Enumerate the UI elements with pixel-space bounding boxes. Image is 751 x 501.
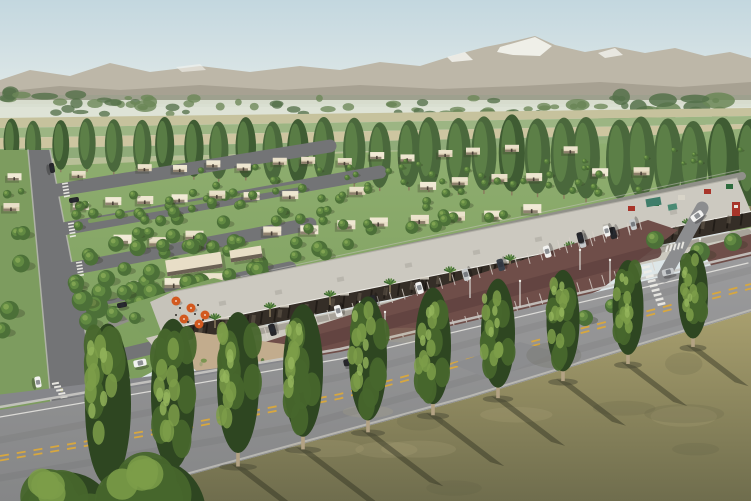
monument-sign (732, 202, 740, 216)
render-canvas (0, 0, 751, 501)
aerial-development-render (0, 0, 751, 501)
render-svg (0, 0, 751, 501)
